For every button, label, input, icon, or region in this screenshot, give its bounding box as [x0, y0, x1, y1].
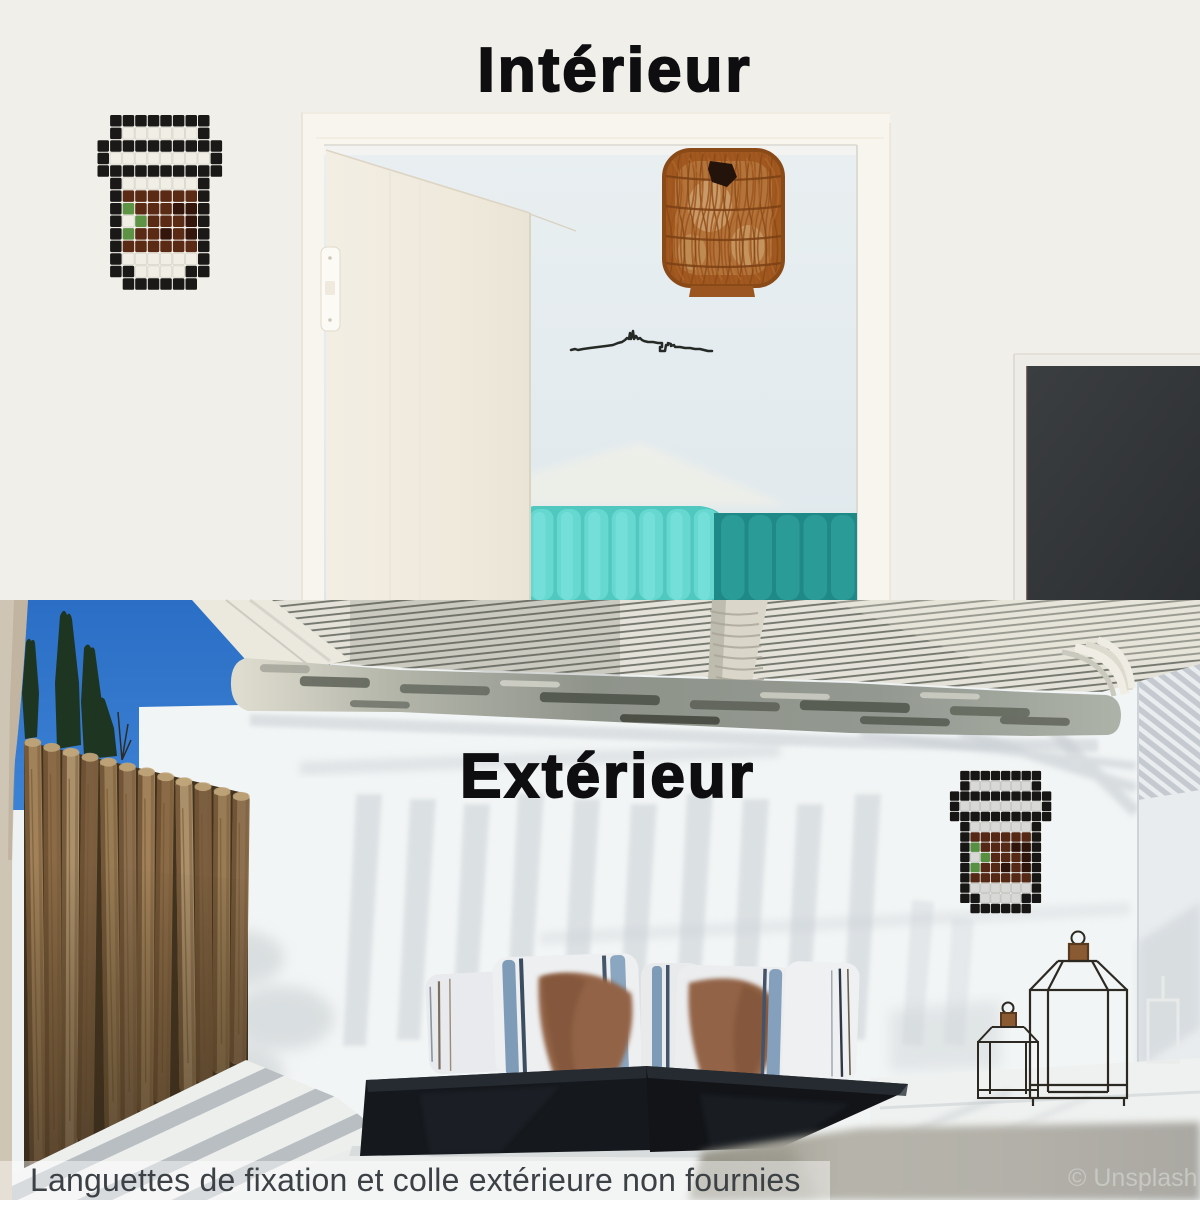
svg-text:© Unsplash: © Unsplash [1068, 1164, 1198, 1192]
svg-text:Extérieur: Extérieur [460, 742, 756, 811]
svg-text:Languettes de fixation et coll: Languettes de fixation et colle extérieu… [30, 1162, 801, 1198]
svg-text:Intérieur: Intérieur [477, 36, 752, 105]
